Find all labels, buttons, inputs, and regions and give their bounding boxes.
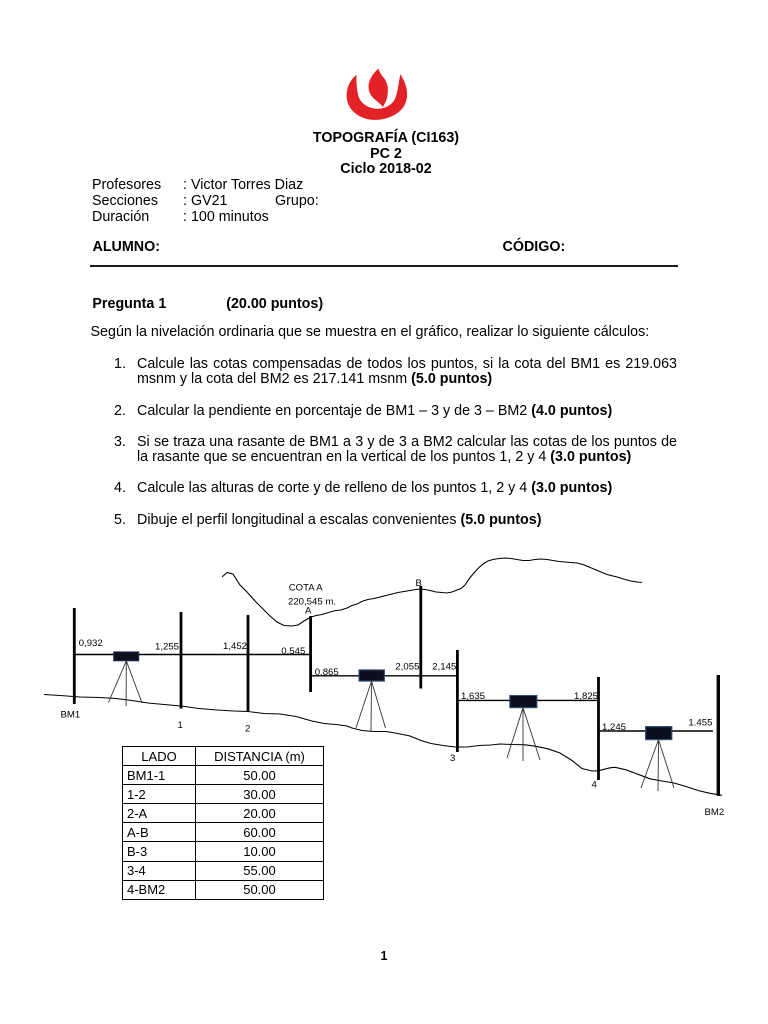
- svg-text:1,245: 1,245: [602, 722, 626, 733]
- svg-text:4: 4: [592, 780, 598, 791]
- svg-text:2,055: 2,055: [395, 661, 419, 672]
- svg-text:1,635: 1,635: [461, 691, 485, 702]
- svg-text:COTA A: COTA A: [289, 583, 324, 594]
- svg-text:BM1: BM1: [61, 710, 81, 721]
- svg-text:A: A: [305, 606, 312, 617]
- svg-text:0,865: 0,865: [315, 667, 339, 678]
- svg-text:2: 2: [245, 724, 250, 735]
- svg-text:2,145: 2,145: [432, 661, 456, 672]
- svg-text:0,932: 0,932: [79, 638, 103, 649]
- svg-text:1,452: 1,452: [223, 641, 247, 652]
- svg-text:BM2: BM2: [705, 807, 725, 818]
- svg-text:B: B: [416, 578, 422, 589]
- svg-text:1,825: 1,825: [574, 691, 598, 702]
- svg-text:0,545: 0,545: [281, 646, 305, 657]
- svg-text:1: 1: [178, 720, 183, 731]
- svg-text:1,255: 1,255: [155, 641, 179, 652]
- svg-text:3: 3: [450, 753, 455, 764]
- svg-text:220,545 m.: 220,545 m.: [288, 597, 336, 608]
- svg-text:1.455: 1.455: [688, 718, 712, 729]
